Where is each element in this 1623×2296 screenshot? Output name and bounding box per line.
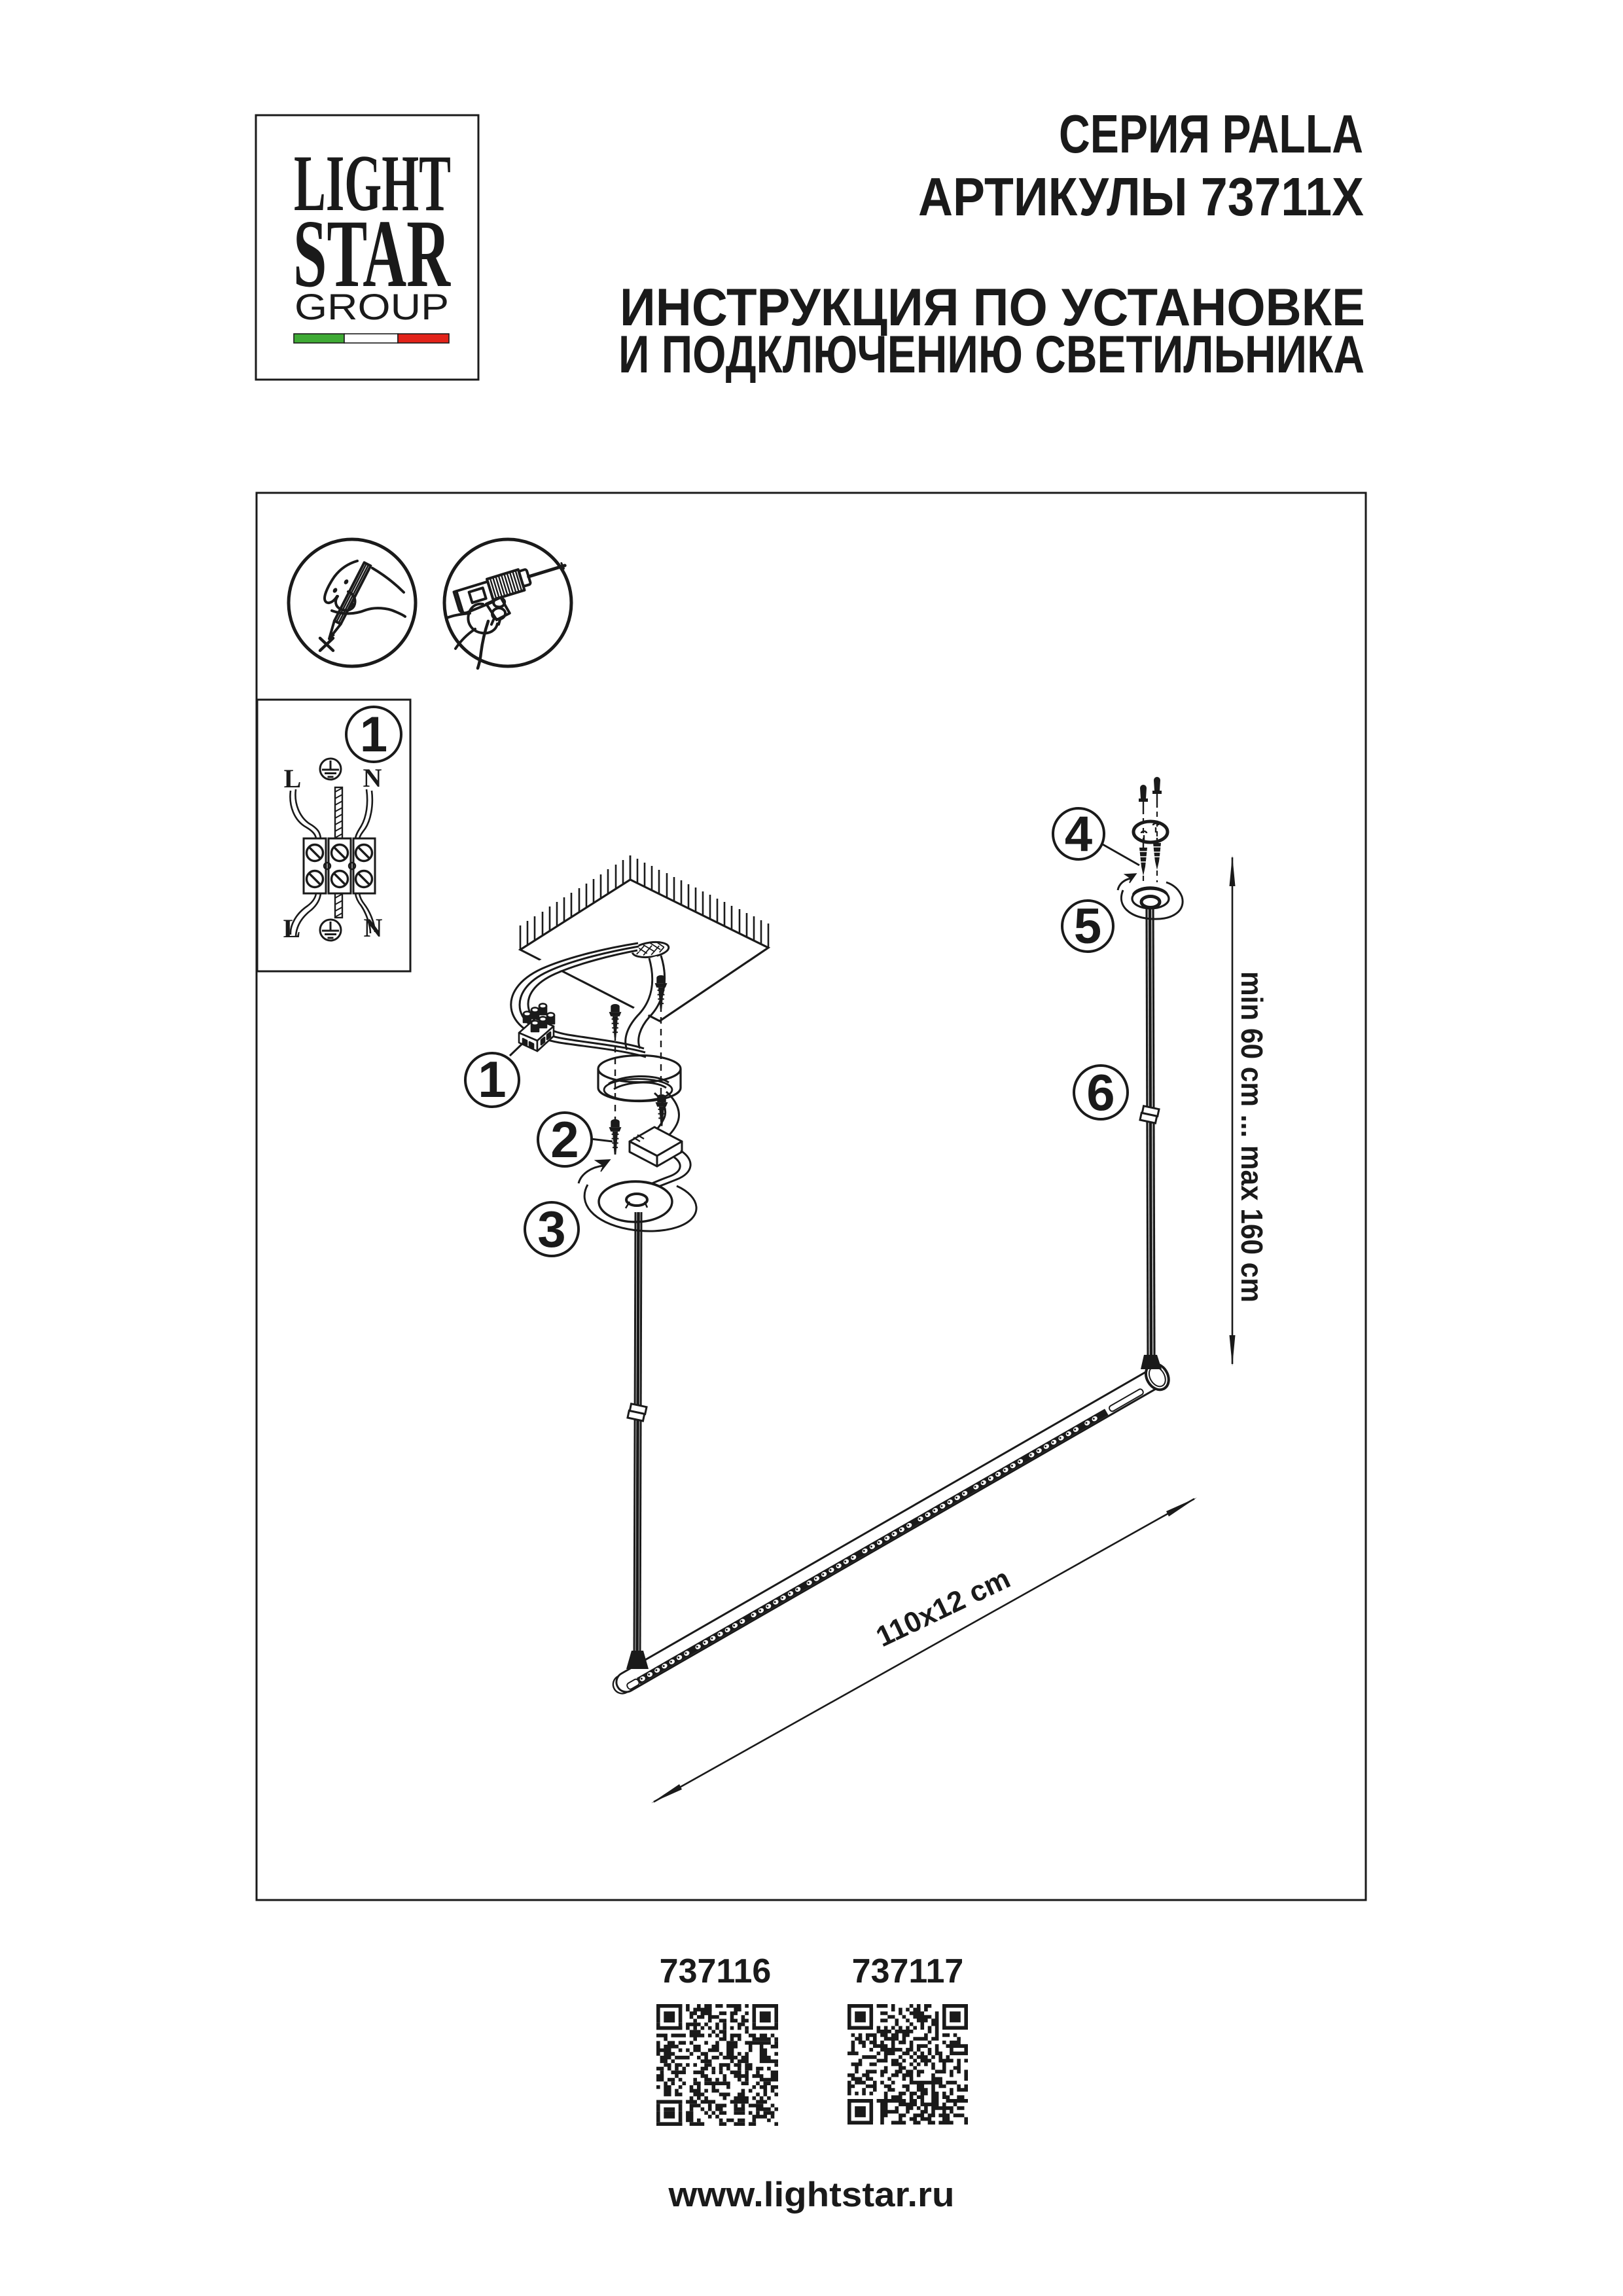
svg-text:2: 2: [550, 1111, 579, 1168]
svg-text:737116: 737116: [660, 1952, 772, 1990]
svg-text:5: 5: [1074, 899, 1101, 954]
svg-text:3: 3: [537, 1200, 565, 1258]
svg-text:L: L: [283, 914, 301, 943]
svg-text:737117: 737117: [852, 1952, 964, 1990]
svg-text:min 60 cm ... max 160 cm: min 60 cm ... max 160 cm: [1235, 971, 1269, 1302]
svg-text:6: 6: [1086, 1064, 1115, 1121]
svg-text:L: L: [284, 764, 302, 793]
svg-text:И ПОДКЛЮЧЕНИЮ СВЕТИЛЬНИКА: И ПОДКЛЮЧЕНИЮ СВЕТИЛЬНИКА: [618, 325, 1364, 384]
svg-text:АРТИКУЛЫ 73711X: АРТИКУЛЫ 73711X: [918, 166, 1364, 227]
svg-text:4: 4: [1065, 806, 1092, 862]
svg-text:www.lightstar.ru: www.lightstar.ru: [668, 2176, 954, 2214]
svg-text:1: 1: [478, 1050, 506, 1108]
svg-text:N: N: [364, 913, 383, 942]
svg-text:GROUP: GROUP: [294, 286, 449, 327]
svg-text:N: N: [363, 763, 382, 793]
svg-text:СЕРИЯ PALLA: СЕРИЯ PALLA: [1059, 103, 1363, 164]
svg-text:1: 1: [360, 707, 387, 762]
